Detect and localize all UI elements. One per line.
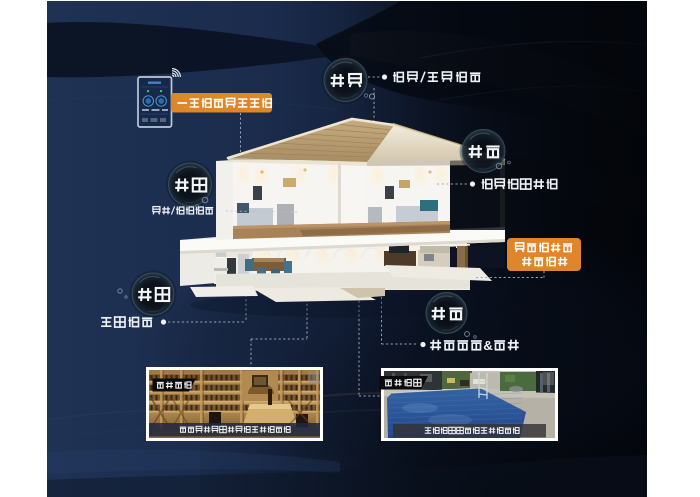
svg-text:&: &: [483, 338, 493, 353]
